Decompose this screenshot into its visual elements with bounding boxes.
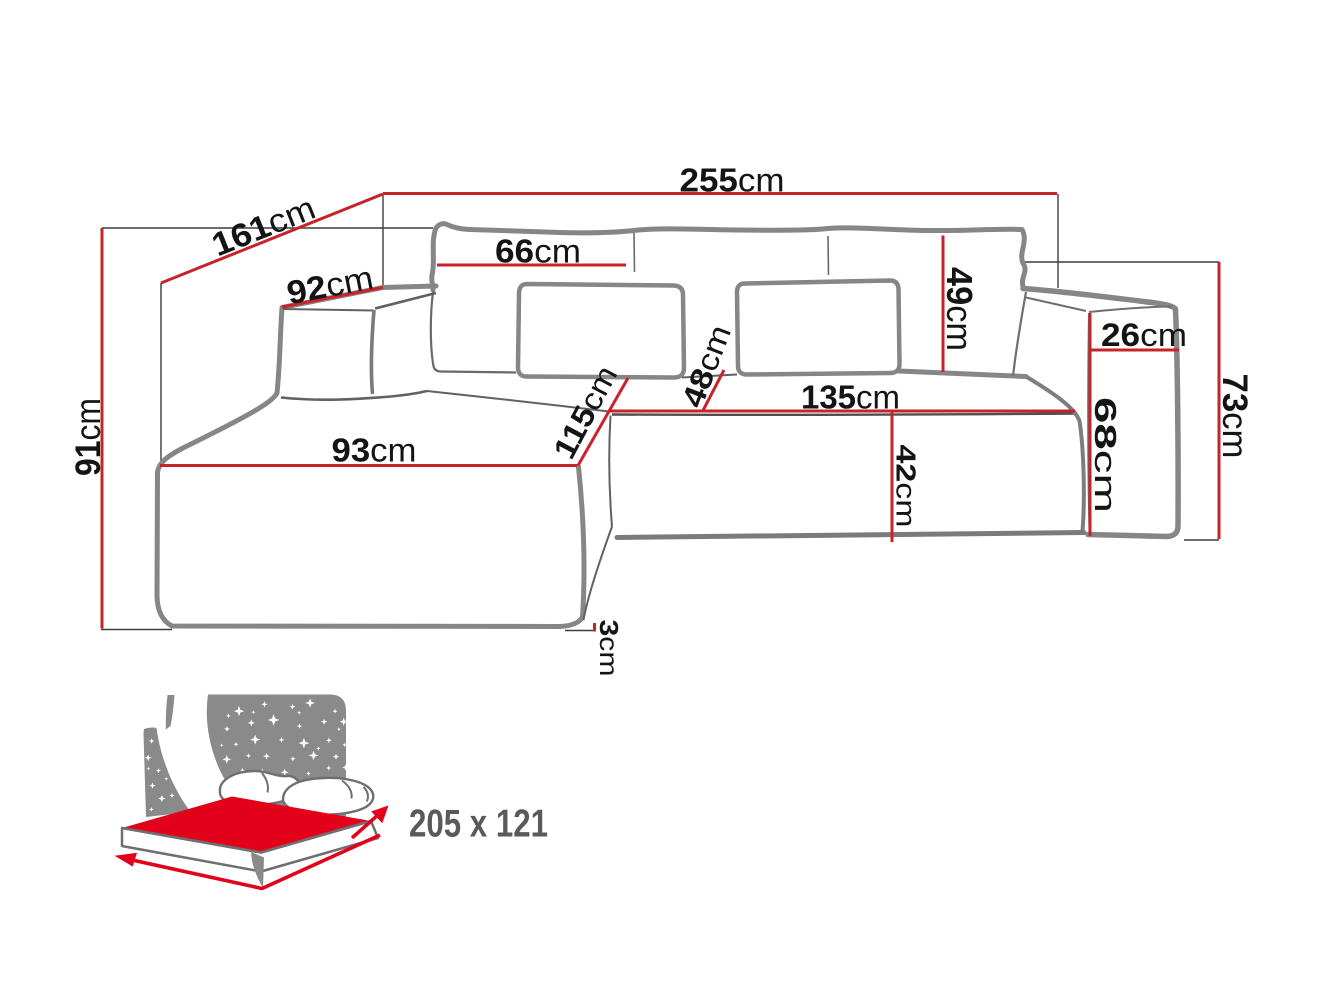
svg-text:49cm: 49cm bbox=[939, 267, 980, 351]
svg-text:205 x 121: 205 x 121 bbox=[409, 803, 548, 846]
svg-text:26cm: 26cm bbox=[1101, 317, 1187, 353]
svg-text:91cm: 91cm bbox=[69, 398, 108, 476]
svg-text:93cm: 93cm bbox=[332, 431, 417, 468]
svg-text:135cm: 135cm bbox=[801, 379, 900, 416]
svg-text:68cm: 68cm bbox=[1088, 397, 1123, 513]
svg-text:42cm: 42cm bbox=[891, 445, 922, 528]
svg-text:66cm: 66cm bbox=[495, 232, 581, 269]
svg-text:3cm: 3cm bbox=[594, 620, 624, 677]
svg-text:255cm: 255cm bbox=[680, 161, 785, 198]
svg-text:73cm: 73cm bbox=[1215, 374, 1254, 459]
